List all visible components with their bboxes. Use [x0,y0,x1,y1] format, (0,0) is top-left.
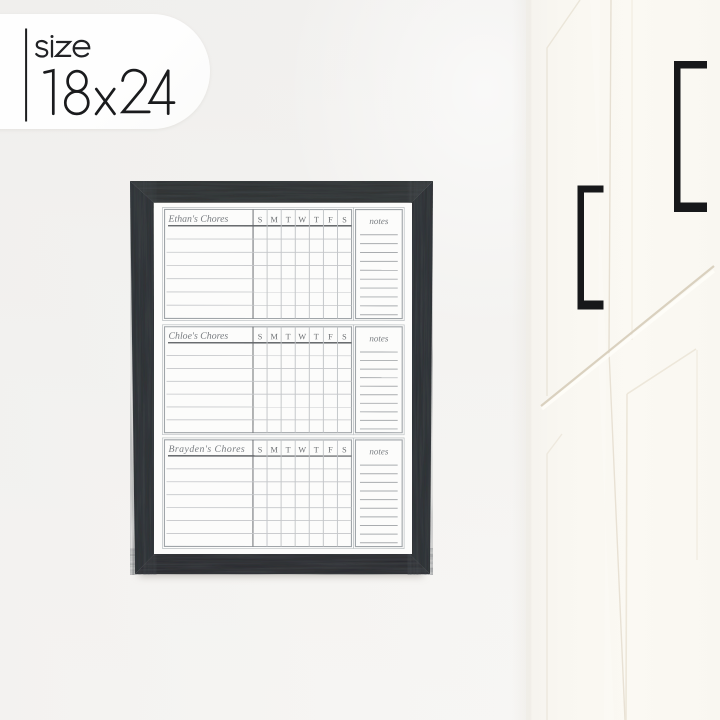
svg-text:S: S [257,332,262,341]
svg-text:T: T [285,215,290,224]
svg-text:Ethan's Chores: Ethan's Chores [167,213,228,224]
svg-text:M: M [270,332,278,341]
svg-text:W: W [298,332,306,341]
svg-text:W: W [298,445,306,454]
svg-text:Brayden's Chores: Brayden's Chores [168,443,245,454]
svg-text:T: T [285,445,290,454]
svg-text:Chloe's Chores: Chloe's Chores [168,330,228,341]
svg-text:notes: notes [369,446,388,456]
svg-text:T: T [313,445,318,454]
svg-text:W: W [298,215,306,224]
svg-text:notes: notes [369,333,388,343]
svg-text:F: F [328,332,333,341]
svg-text:F: F [328,445,333,454]
svg-text:T: T [285,332,290,341]
svg-text:F: F [328,215,333,224]
svg-text:M: M [270,445,278,454]
svg-text:notes: notes [369,216,388,226]
svg-text:T: T [313,332,318,341]
svg-text:T: T [313,215,318,224]
svg-text:S: S [342,332,347,341]
svg-text:S: S [342,445,347,454]
svg-text:S: S [342,215,347,224]
svg-text:S: S [257,445,262,454]
svg-text:S: S [257,215,262,224]
svg-text:M: M [270,215,278,224]
